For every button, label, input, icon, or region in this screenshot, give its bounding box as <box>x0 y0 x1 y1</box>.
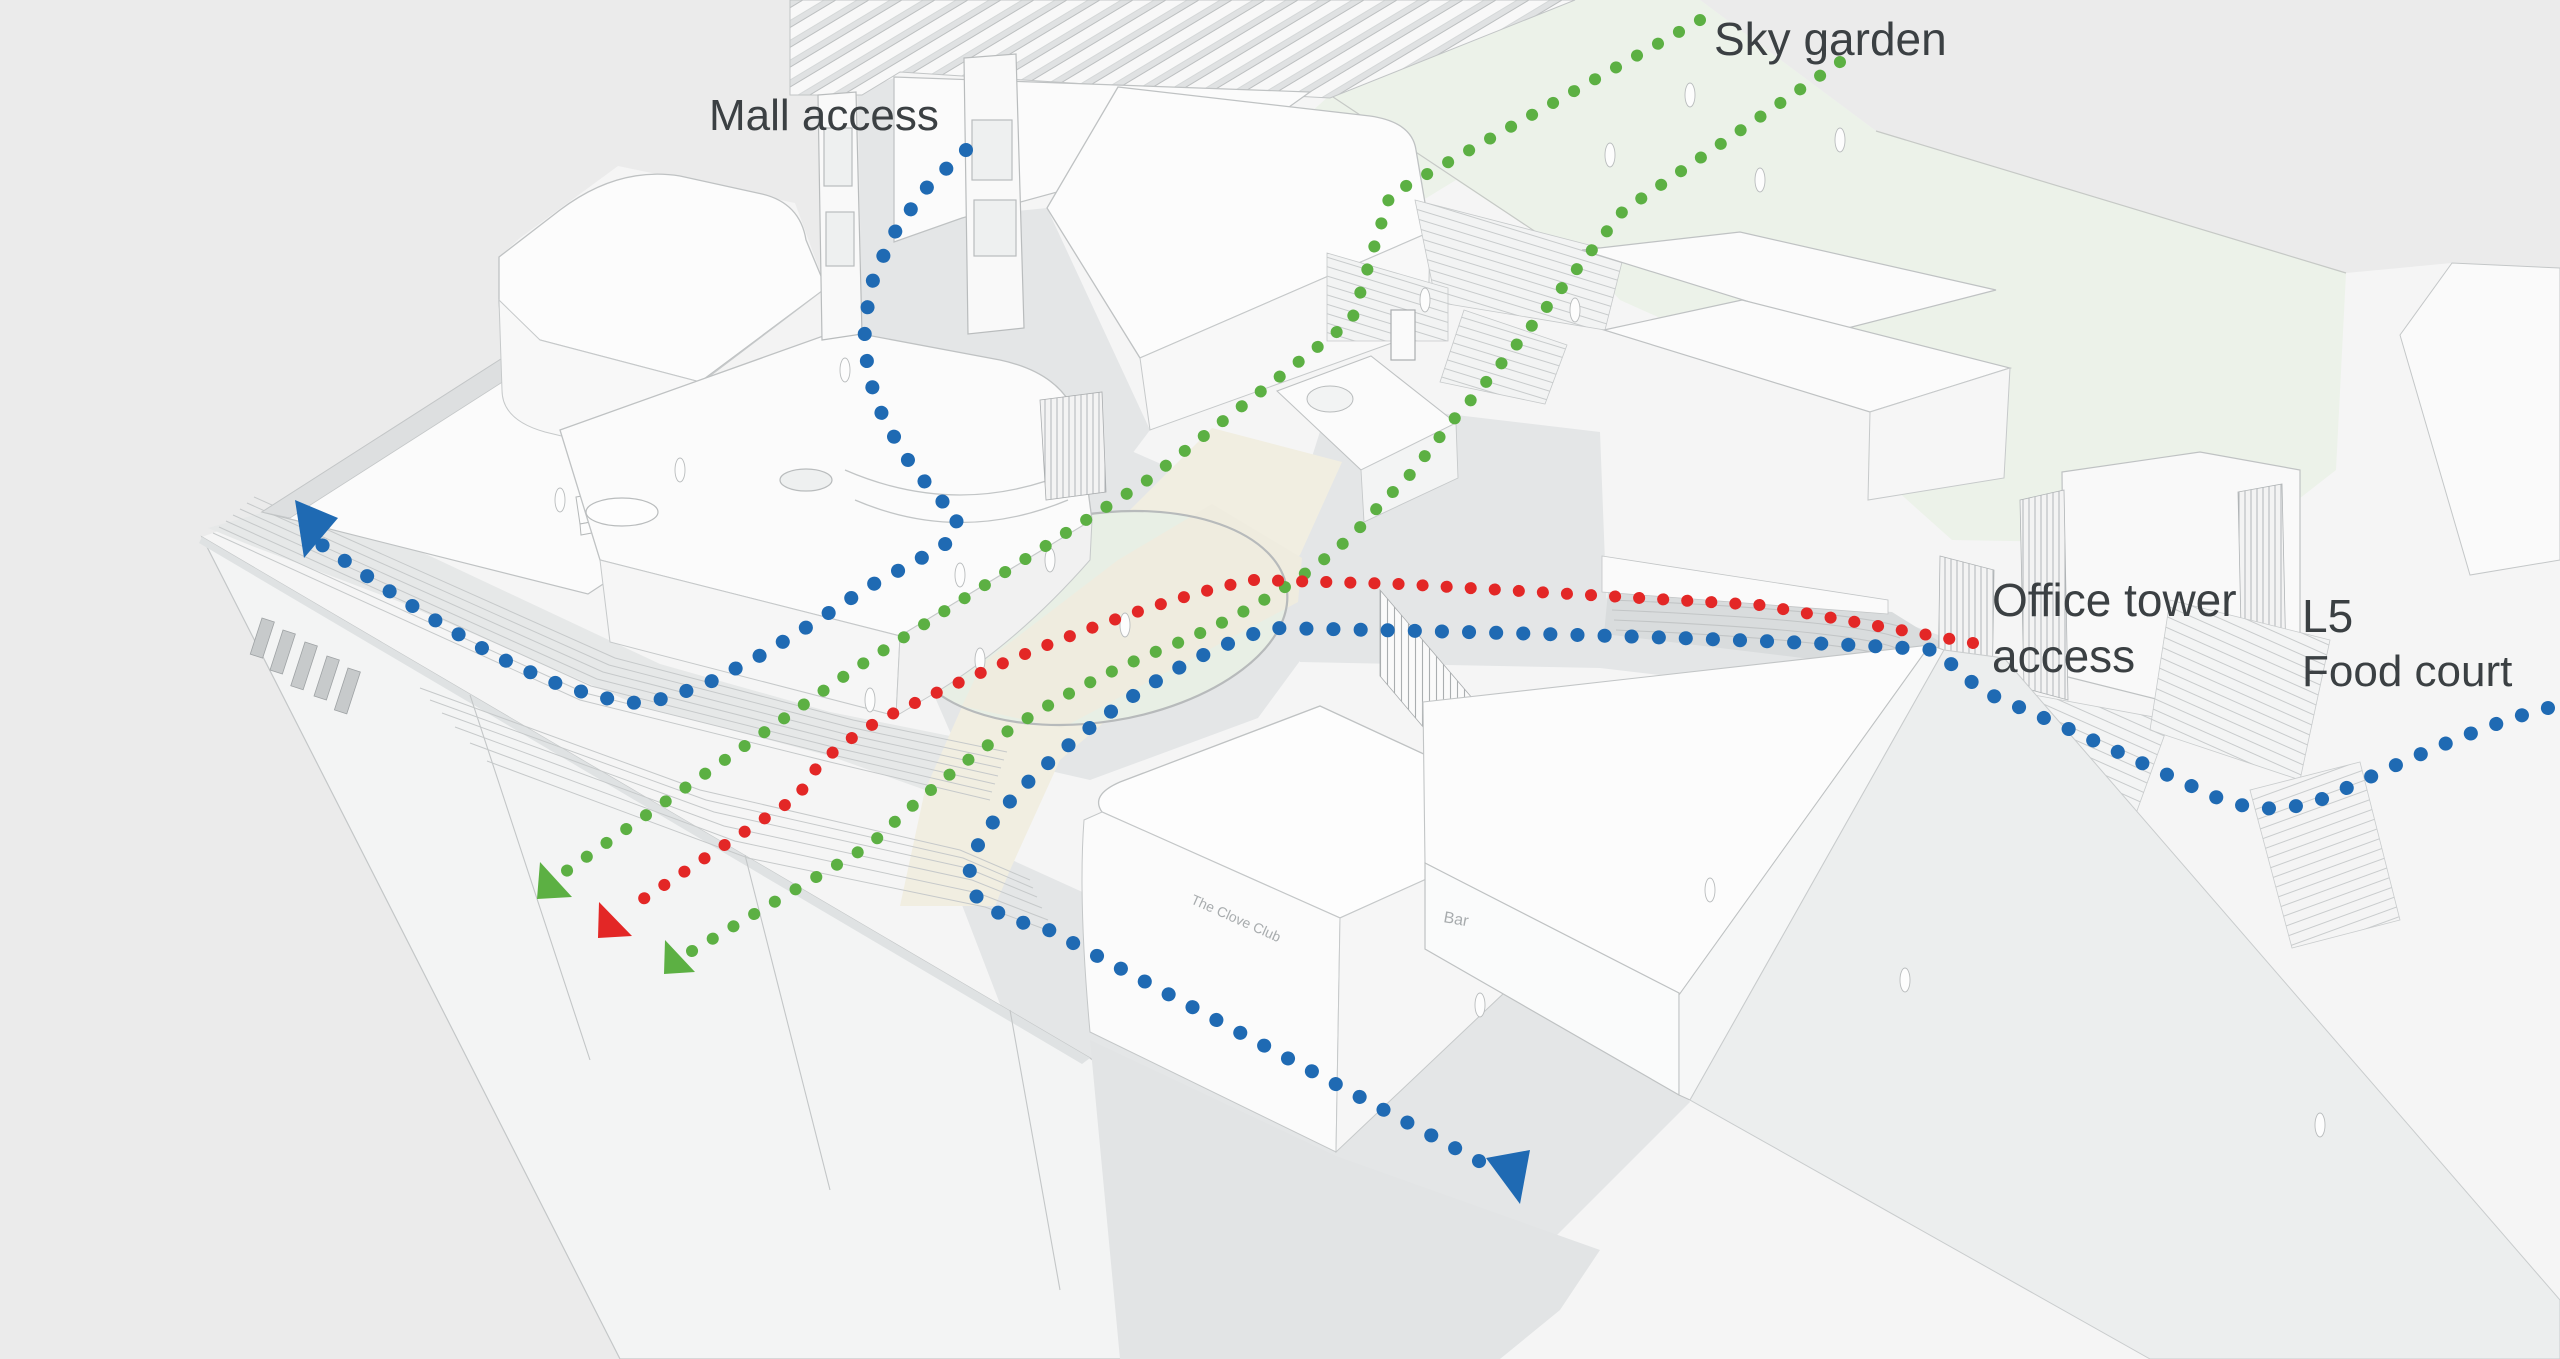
svg-text:Office tower: Office tower <box>1992 574 2237 626</box>
svg-text:Mall access: Mall access <box>709 91 939 140</box>
svg-text:access: access <box>1992 630 2135 682</box>
svg-text:Food court: Food court <box>2302 647 2512 696</box>
svg-text:L5: L5 <box>2302 590 2353 642</box>
svg-text:Sky garden: Sky garden <box>1714 13 1947 65</box>
